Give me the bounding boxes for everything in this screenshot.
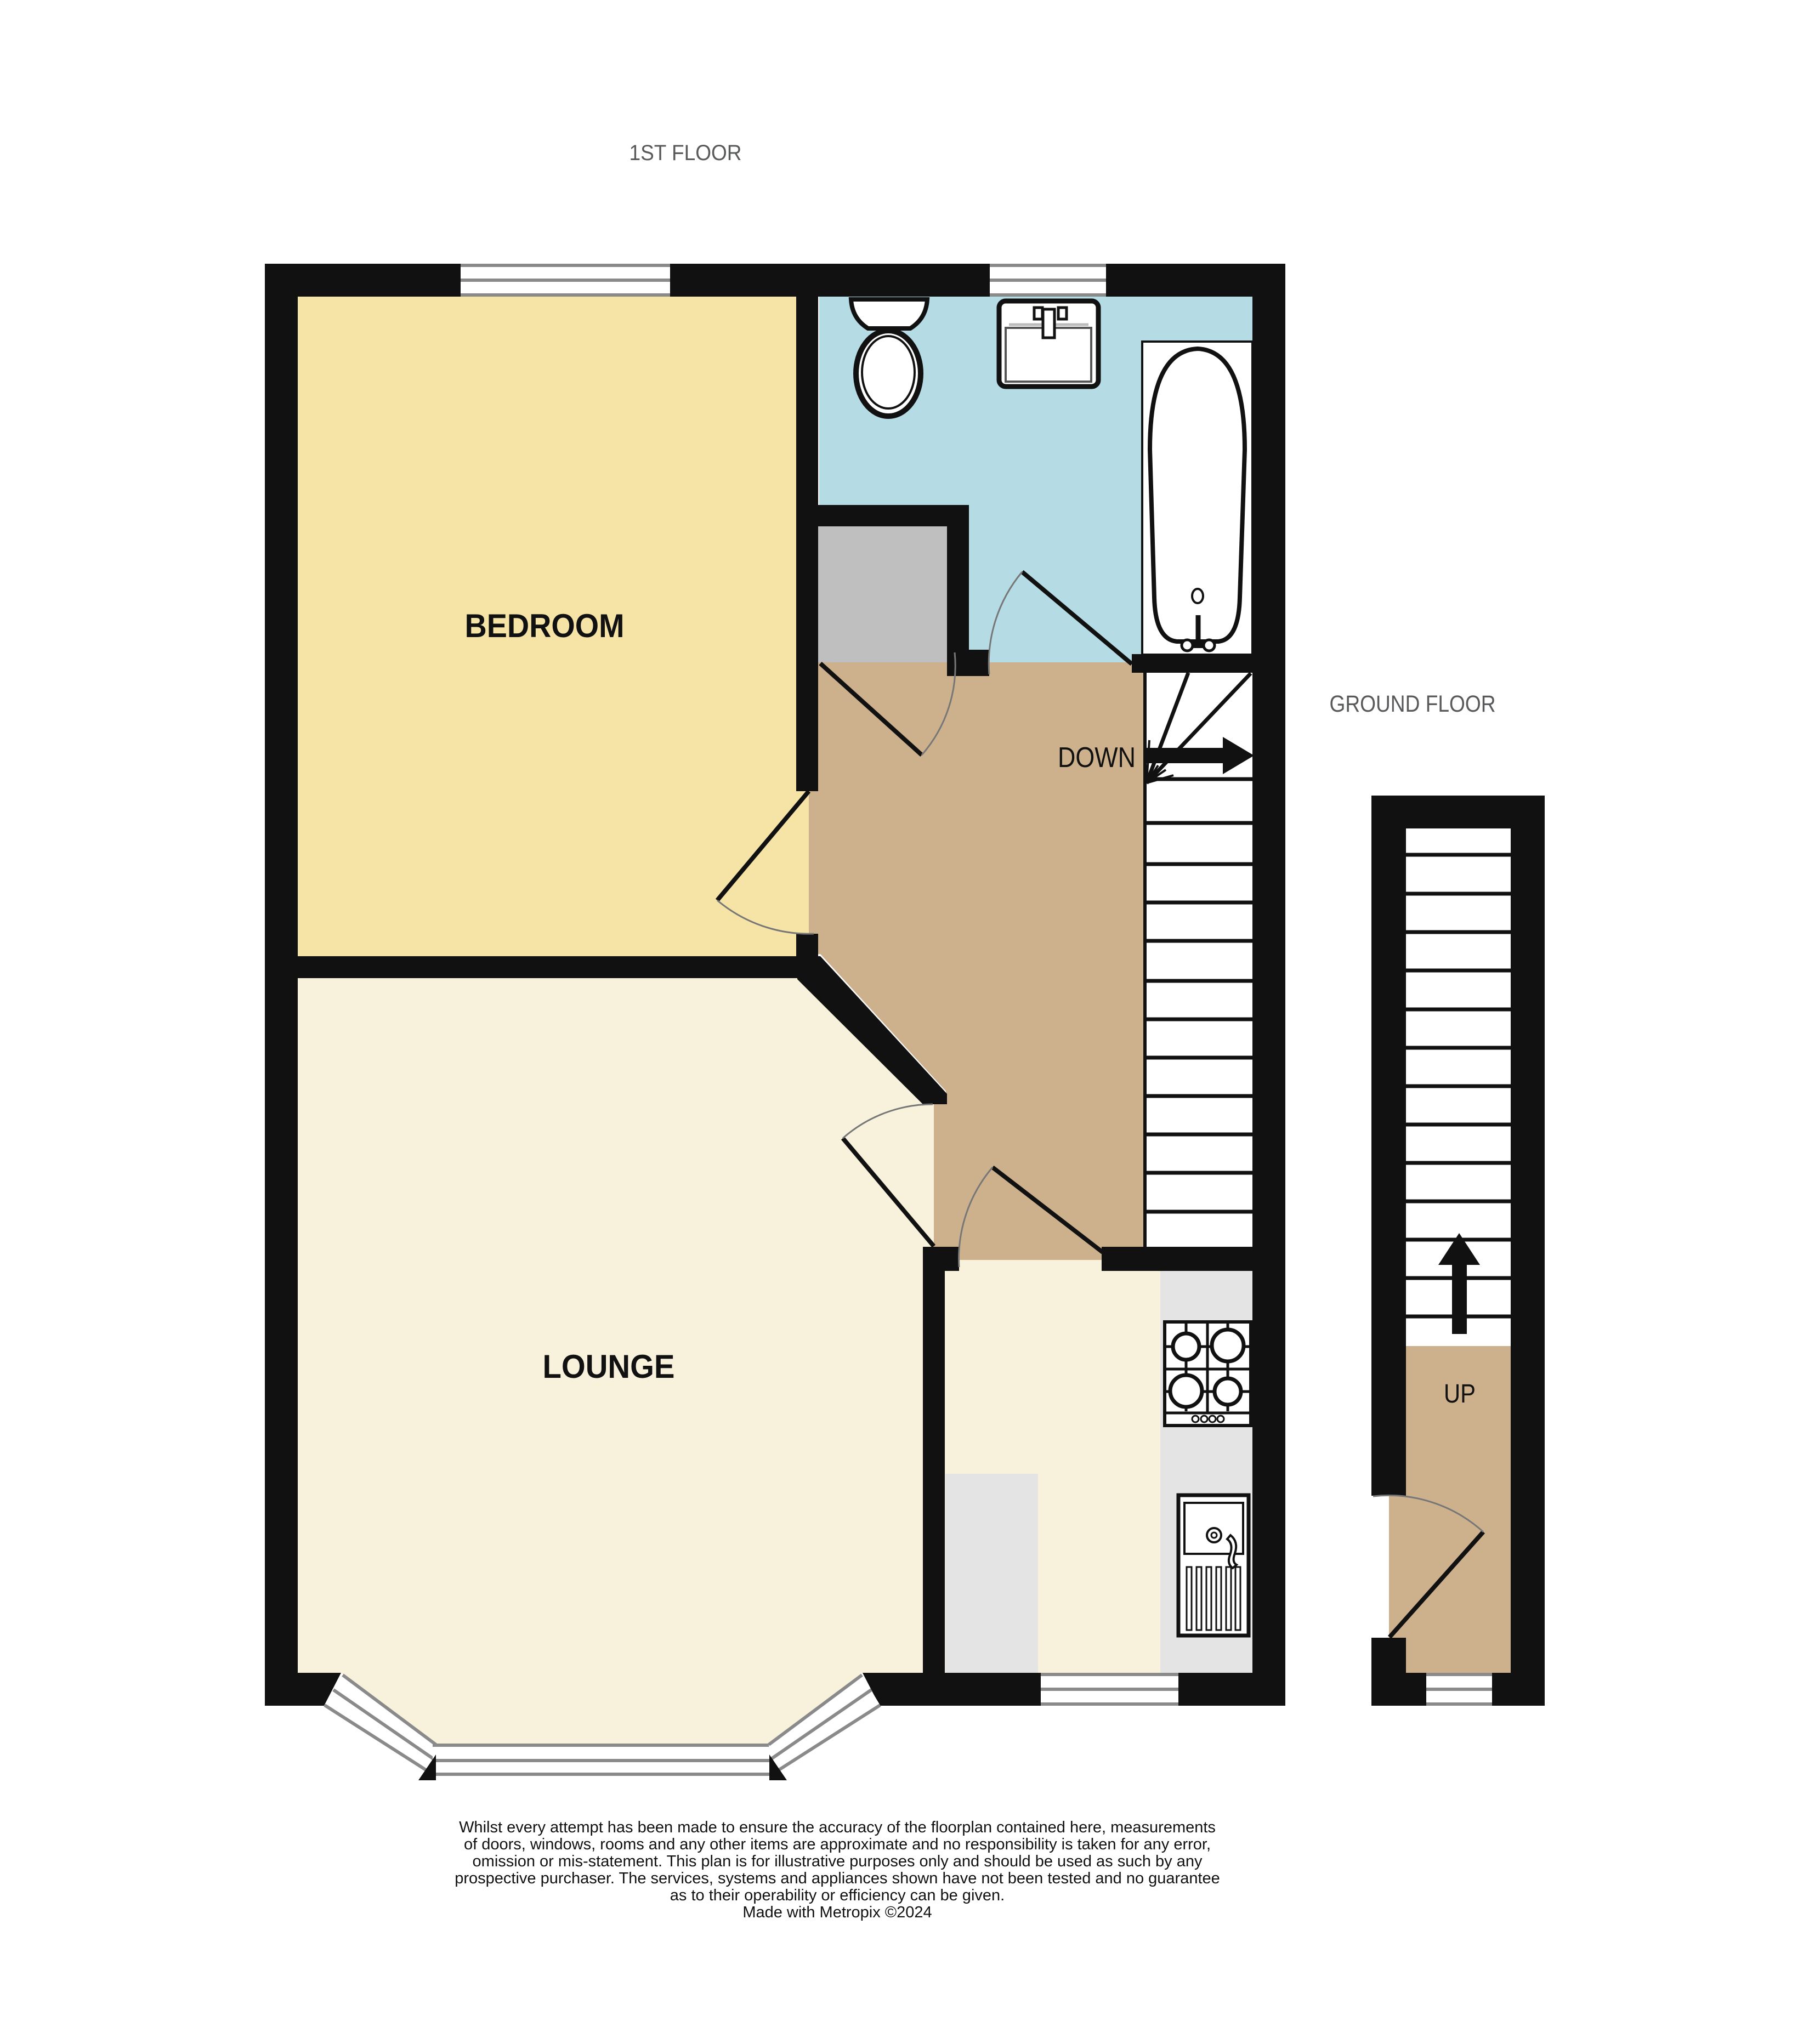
svg-text:LOUNGE: LOUNGE <box>543 1348 675 1385</box>
svg-text:GROUND FLOOR: GROUND FLOOR <box>1330 691 1496 717</box>
svg-text:DOWN: DOWN <box>1058 742 1136 774</box>
svg-text:Made with Metropix ©2024: Made with Metropix ©2024 <box>742 1904 932 1921</box>
svg-text:omission or mis-statement. Thi: omission or mis-statement. This plan is … <box>473 1853 1203 1870</box>
svg-text:prospective purchaser. The ser: prospective purchaser. The services, sys… <box>455 1870 1220 1887</box>
svg-text:of doors, windows, rooms and a: of doors, windows, rooms and any other i… <box>464 1836 1211 1853</box>
svg-text:UP: UP <box>1444 1379 1476 1409</box>
svg-text:Whilst every attempt has been: Whilst every attempt has been made to en… <box>459 1819 1216 1836</box>
svg-text:BEDROOM: BEDROOM <box>465 607 625 644</box>
svg-text:as to their operability or eff: as to their operability or efficiency ca… <box>670 1887 1005 1904</box>
svg-text:1ST FLOOR: 1ST FLOOR <box>630 141 742 165</box>
